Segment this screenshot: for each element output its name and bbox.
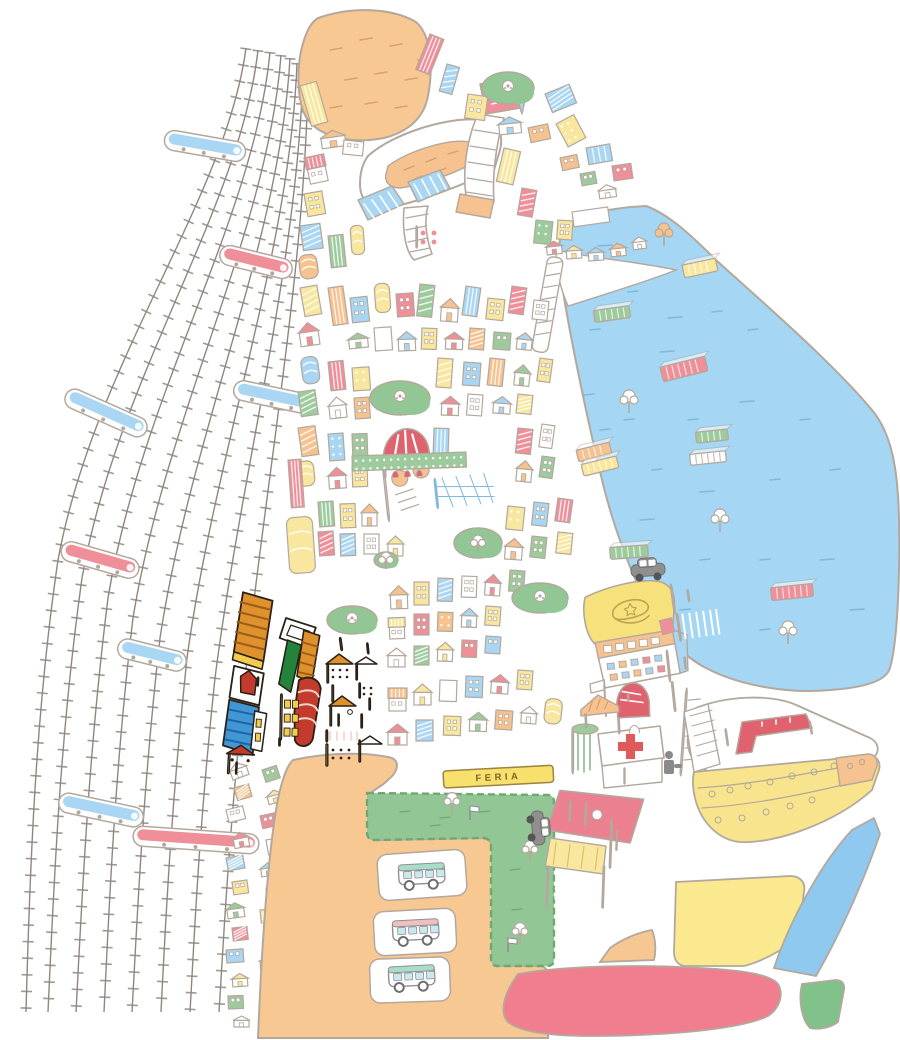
building — [352, 367, 371, 391]
building — [389, 585, 409, 609]
building — [364, 534, 379, 554]
building — [580, 171, 597, 185]
building — [340, 503, 356, 528]
building — [417, 284, 435, 317]
building — [515, 428, 533, 454]
soccer-field — [370, 381, 430, 415]
building — [297, 321, 321, 347]
building — [414, 646, 429, 665]
building — [484, 574, 502, 596]
park-green — [374, 552, 398, 569]
building — [496, 148, 520, 185]
building — [493, 332, 511, 350]
building — [487, 358, 505, 386]
building — [508, 286, 527, 315]
building — [416, 720, 433, 741]
building — [485, 606, 501, 626]
building — [347, 332, 369, 349]
building — [462, 362, 481, 386]
building — [298, 253, 319, 279]
building — [437, 578, 453, 602]
building — [234, 783, 252, 800]
building — [513, 364, 532, 387]
pink-zone — [503, 966, 780, 1036]
building — [388, 688, 407, 711]
ferry-ship — [684, 698, 880, 843]
building — [528, 124, 551, 143]
building — [228, 995, 243, 1009]
building — [328, 234, 346, 267]
highlight-block-east[interactable] — [326, 637, 382, 766]
building — [515, 460, 534, 483]
building — [586, 144, 613, 165]
building — [537, 358, 553, 383]
building — [298, 426, 319, 457]
building — [539, 456, 555, 479]
building — [387, 648, 406, 667]
building — [557, 220, 573, 240]
building — [328, 433, 345, 461]
building — [352, 452, 466, 471]
building — [318, 501, 335, 527]
track-2 — [48, 50, 258, 1012]
building — [556, 115, 586, 147]
building — [433, 428, 449, 454]
feria-banner: FERIA — [443, 765, 554, 788]
building — [288, 459, 304, 508]
building — [350, 296, 370, 323]
building — [560, 154, 579, 170]
building — [328, 286, 348, 326]
building — [468, 712, 488, 732]
dock-worker-icon — [664, 751, 682, 774]
highlight-block-mid[interactable] — [278, 618, 322, 747]
building — [517, 670, 533, 690]
building — [226, 806, 246, 823]
building — [515, 332, 534, 351]
train-blue-4 — [116, 637, 189, 673]
building — [436, 358, 453, 388]
building — [506, 506, 525, 531]
building — [300, 356, 321, 385]
building — [530, 536, 547, 558]
building — [437, 612, 453, 632]
building — [597, 183, 618, 199]
building — [300, 285, 322, 317]
building — [300, 223, 323, 251]
building — [231, 973, 249, 987]
building — [492, 396, 512, 414]
building — [262, 765, 280, 782]
building — [328, 360, 346, 390]
map-canvas: FERIA — [0, 0, 900, 1040]
building — [439, 298, 460, 322]
harbor-building — [544, 790, 644, 909]
building — [532, 502, 549, 526]
building — [352, 433, 368, 457]
building — [539, 424, 555, 449]
building — [421, 328, 437, 350]
building — [413, 684, 432, 705]
track-4 — [104, 55, 281, 1012]
building — [414, 614, 429, 635]
building — [485, 636, 501, 654]
building — [486, 298, 505, 321]
building — [298, 390, 318, 417]
building — [361, 504, 378, 526]
building — [461, 576, 477, 598]
building — [444, 332, 464, 350]
building — [343, 140, 364, 156]
building — [436, 642, 454, 662]
building — [374, 327, 393, 351]
building — [612, 163, 633, 180]
building — [396, 293, 415, 317]
building — [490, 674, 510, 694]
orange-zone — [600, 930, 655, 962]
building — [439, 64, 459, 94]
building — [226, 949, 244, 963]
building — [440, 396, 460, 416]
building — [318, 531, 335, 556]
building — [543, 698, 563, 725]
container-barge — [695, 424, 733, 443]
building — [414, 582, 429, 605]
green-zone — [800, 980, 844, 1029]
building — [462, 286, 481, 317]
striped-house — [580, 694, 620, 728]
building — [233, 1016, 250, 1027]
building — [465, 94, 488, 121]
building — [555, 498, 573, 523]
building — [443, 716, 461, 736]
building — [465, 676, 483, 698]
hospital — [572, 724, 664, 788]
building — [532, 300, 549, 320]
train-red-1 — [218, 243, 295, 280]
building — [354, 397, 370, 419]
building — [232, 880, 249, 895]
building — [227, 760, 250, 781]
track-1 — [26, 48, 246, 1012]
container-barge — [609, 540, 653, 559]
building — [534, 220, 553, 245]
building — [327, 396, 348, 419]
building — [397, 331, 417, 351]
building — [556, 532, 573, 554]
building — [469, 328, 485, 350]
building — [495, 710, 513, 730]
building — [374, 283, 391, 313]
building — [350, 225, 365, 255]
building — [461, 640, 477, 658]
red-boathouse — [616, 682, 651, 734]
building — [388, 617, 406, 639]
soccer-field — [512, 583, 568, 613]
illustrated-city-map: FERIA — [0, 0, 900, 1040]
train-red-2 — [59, 539, 141, 580]
soccer-field — [482, 72, 534, 104]
building — [460, 608, 478, 628]
soccer-field — [327, 606, 377, 634]
highlight-block-west[interactable] — [221, 592, 272, 776]
building — [516, 394, 533, 414]
building — [304, 154, 329, 185]
train-blue-5 — [57, 791, 145, 828]
building — [304, 191, 326, 217]
building — [286, 516, 316, 574]
building — [226, 855, 245, 871]
building — [504, 538, 524, 560]
building — [327, 467, 347, 489]
building — [545, 84, 577, 112]
building — [340, 533, 356, 556]
building — [520, 706, 538, 724]
train-blue-1 — [163, 129, 247, 163]
building — [467, 394, 483, 416]
building — [517, 188, 536, 217]
building — [439, 680, 457, 702]
building — [232, 926, 248, 941]
park-green — [454, 528, 502, 558]
building — [387, 724, 408, 745]
